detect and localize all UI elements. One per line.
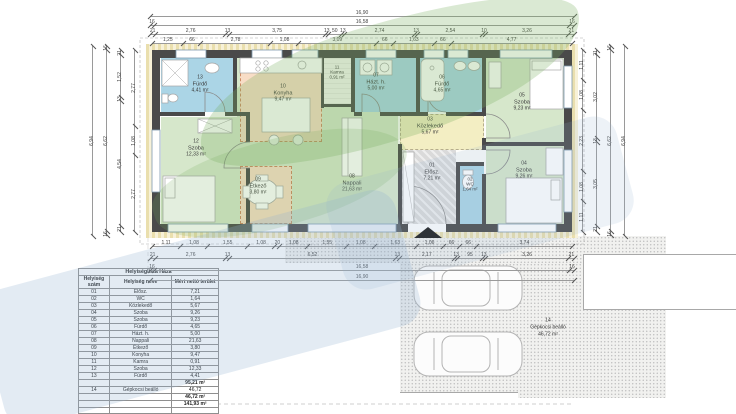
dim-value: 3,02: [593, 92, 599, 102]
dim-chain-right: 1,111,082,231,081,11: [582, 50, 590, 232]
room-label-09: 09Étkező3,80 m²: [249, 176, 266, 196]
cell-name: Gépkocsi beálló: [109, 387, 171, 394]
table-row: 141,93 m²: [79, 401, 219, 408]
table-row: 02WC1,64: [79, 296, 219, 303]
room-11-ar: 0,91 m²: [330, 75, 345, 80]
dim-value: 21: [117, 226, 123, 232]
dim-value: 6,62: [607, 136, 613, 146]
dim-segment: 2,76: [155, 252, 226, 259]
dim-segment: 3,26: [485, 252, 568, 259]
dim-segment: 6,94: [624, 46, 632, 236]
room-06-ar: 4,65 m²: [434, 87, 451, 94]
dim-segment: 16,58: [154, 19, 570, 26]
dim-value: 1,08: [579, 182, 585, 192]
dim-value: 16: [569, 264, 575, 270]
room-06: [420, 58, 482, 112]
cell-name: WC: [109, 296, 171, 303]
dim-segment: 6,62: [610, 50, 618, 231]
cell-num: 12: [79, 366, 110, 373]
dim-value: 2,17: [422, 252, 432, 258]
cell-num: 04: [79, 310, 110, 317]
dim-value: 21: [593, 226, 599, 232]
dim-value: 6,94: [621, 136, 627, 146]
dim-value: 66: [189, 37, 195, 43]
dim-value: 16: [607, 231, 613, 237]
cell-num: [79, 394, 110, 401]
dim-chain-right: 6,94: [624, 46, 632, 236]
cell-num: 08: [79, 338, 110, 345]
dim-segment: 2,23: [582, 110, 590, 171]
dim-segment: 16: [570, 264, 574, 271]
dim-segment: 1,55: [307, 240, 347, 247]
room-02-ar: 1,64 m²: [463, 187, 478, 192]
dim-segment: 21: [120, 226, 128, 232]
cell-num: [79, 380, 110, 387]
room-12: [161, 117, 246, 224]
cell-name: Szoba: [109, 310, 171, 317]
dim-segment: 3,74: [477, 240, 572, 247]
dim-segment: 16: [610, 232, 618, 236]
dim-chain-bottom: 212,76136,52132,171395133,2621: [150, 252, 574, 259]
cell-name: Szoba: [109, 317, 171, 324]
dim-value: 21: [569, 252, 575, 258]
room-05-ar: 9,23 m²: [514, 105, 531, 112]
room-04-ar: 9,26 m²: [516, 173, 533, 180]
cell-area: 21,63: [172, 338, 219, 345]
dim-chain-left: 6,94: [92, 46, 100, 236]
cell-name: Elősz.: [109, 289, 171, 296]
table-row: 08Nappali21,63: [79, 338, 219, 345]
room-label-13: 13Fürdő4,41 m²: [192, 74, 209, 94]
dim-value: 66: [466, 240, 472, 246]
table-row: 03Közlekedő5,67: [79, 303, 219, 310]
dim-segment: 1,08: [347, 240, 375, 247]
cell-area: 3,80: [172, 345, 219, 352]
table-row: 12Szoba12,33: [79, 366, 219, 373]
dim-value: 16: [103, 231, 109, 237]
dim-value: 3,09: [332, 37, 342, 43]
dim-value: 3,75: [272, 28, 282, 34]
dim-segment: 16,90: [150, 274, 574, 281]
dim-value: 2,23: [579, 136, 585, 146]
dim-segment: 1,11: [152, 240, 180, 247]
dim-segment: 66: [434, 37, 451, 44]
dim-value: 2,54: [445, 28, 455, 34]
room-label-05: 05Szoba9,23 m²: [514, 92, 531, 112]
dim-value: 16,58: [356, 264, 369, 270]
dim-value: 1,06: [425, 240, 435, 246]
cell-area: 4,65: [172, 324, 219, 331]
table-row: 14Gépkocsi beálló46,72: [79, 387, 219, 394]
cell-num: 13: [79, 373, 110, 380]
room-list-table: Helyiséglista HázaHelyiség számHelyiség …: [78, 268, 219, 414]
cell-area: 4,41: [172, 373, 219, 380]
dim-value: 21: [569, 28, 575, 34]
table-row: 09Étkező3,80: [79, 345, 219, 352]
dim-value: 2,76: [186, 252, 196, 258]
dim-segment: 66: [460, 240, 477, 247]
cell-num: 09: [79, 345, 110, 352]
room-12-ar: 12,33 m²: [186, 151, 206, 158]
side-walkway: [583, 254, 736, 310]
col-header-num: Helyiség szám: [79, 276, 110, 289]
dim-segment: 66: [184, 37, 201, 44]
dim-segment: 1,08: [582, 81, 590, 111]
cell-name: Fürdő: [109, 373, 171, 380]
dim-segment: 16: [570, 19, 574, 26]
dim-segment: 16,58: [154, 264, 570, 271]
room-list: Helyiséglista HázaHelyiség számHelyiség …: [78, 268, 219, 414]
dim-segment: 1,08: [134, 126, 142, 156]
table-row: 11Kamra0,91: [79, 359, 219, 366]
dim-value: 50: [332, 28, 338, 34]
dim-segment: 6,62: [106, 50, 114, 231]
cell-name: Házt. h.: [109, 331, 171, 338]
dim-segment: 4,54: [120, 101, 128, 226]
dim-segment: 2,17: [399, 252, 454, 259]
cell-area: 0,91: [172, 359, 219, 366]
dim-value: 3,05: [593, 179, 599, 189]
dim-chain-bottom: 1616,5816: [150, 264, 574, 271]
dim-segment: 1,63: [393, 37, 434, 44]
dim-value: 4,77: [507, 37, 517, 43]
dim-segment: 4,77: [451, 37, 572, 44]
dim-value: 2,77: [131, 189, 137, 199]
dim-chain-top: 1,25662,781,083,09661,63664,77: [152, 37, 572, 44]
dim-segment: 1,55: [208, 240, 248, 247]
cell-num: 10: [79, 352, 110, 359]
room-09-ar: 3,80 m²: [249, 189, 266, 196]
dim-segment: 1,52: [120, 56, 128, 98]
dim-segment: 66: [376, 37, 393, 44]
room-label-06: 06Fürdő4,65 m²: [434, 74, 451, 94]
dim-chain-left: 2,771,082,77: [134, 50, 142, 232]
dim-value: 4,54: [117, 159, 123, 169]
cell-num: 01: [79, 289, 110, 296]
dim-value: 66: [440, 37, 446, 43]
table-row: 07Házt. h.5,00: [79, 331, 219, 338]
paving-notch: [400, 392, 518, 414]
cell-area: 46,72: [172, 387, 219, 394]
dim-segment: 21: [569, 28, 574, 35]
room-label-07: 07Házt. h.5,00 m²: [366, 72, 385, 92]
dim-segment: 1,63: [375, 240, 417, 247]
dim-segment: 6,52: [229, 252, 396, 259]
dim-segment: 21: [596, 226, 604, 232]
dim-value: 6,62: [103, 136, 109, 146]
dim-segment: 3,09: [298, 37, 376, 44]
cell-area: 95,21 m²: [172, 380, 219, 387]
dim-segment: 1,11: [582, 201, 590, 232]
dim-segment: 6,94: [92, 46, 100, 236]
room-label-11: 11Kamra0,91 m²: [330, 65, 345, 80]
cell-num: [79, 401, 110, 408]
cell-name: [109, 394, 171, 401]
cell-name: Étkező: [109, 345, 171, 352]
dim-value: 1,08: [579, 91, 585, 101]
dim-value: 1,52: [117, 72, 123, 82]
dim-value: 6,94: [89, 136, 95, 146]
dim-value: 66: [382, 37, 388, 43]
dim-value: 16,90: [356, 10, 369, 16]
dim-value: 2,77: [131, 83, 137, 93]
dim-segment: 3,26: [485, 28, 568, 35]
dim-value: 6,52: [308, 252, 318, 258]
floor-plan-canvas: 08Nappali21,63 m²12Szoba12,33 m²13Fürdő4…: [0, 0, 736, 414]
cell-num: 02: [79, 296, 110, 303]
room-label-01: 01Elősz.7,21 m²: [424, 162, 441, 182]
dim-value: 16: [569, 19, 575, 25]
cell-area: 141,93 m²: [172, 401, 219, 408]
parking-label: 14 Gépkocsi beálló 46,72 m²: [530, 318, 566, 339]
dim-value: 3,26: [522, 28, 532, 34]
room-label-03: 03Közlekedő5,67 m²: [417, 116, 443, 136]
parking-area: 46,72 m²: [530, 332, 566, 339]
dim-segment: 2,54: [418, 28, 483, 35]
dim-chain-bottom: 1,111,081,551,08201,081,551,081,631,0666…: [152, 240, 572, 247]
dim-value: 1,63: [390, 240, 400, 246]
room-02: [458, 166, 484, 224]
cell-area: 46,72 m²: [172, 394, 219, 401]
cell-num: 05: [79, 317, 110, 324]
room-07-ar: 5,00 m²: [366, 85, 385, 92]
cell-name: Fürdő: [109, 324, 171, 331]
table-row: 05Szoba9,23: [79, 317, 219, 324]
dim-chain-left: 211,52134,5421: [120, 50, 128, 232]
cell-area: 1,64: [172, 296, 219, 303]
room-08-ar: 21,63 m²: [342, 186, 362, 193]
room-04: [486, 146, 564, 224]
dim-value: 1,11: [579, 61, 585, 70]
dim-value: 2,76: [186, 28, 196, 34]
dim-chain-right: 166,6216: [610, 46, 618, 236]
dim-value: 2,78: [231, 37, 241, 43]
cell-num: 07: [79, 331, 110, 338]
parking-name: Gépkocsi beálló: [530, 325, 566, 332]
table-row: 95,21 m²: [79, 380, 219, 387]
cell-area: 7,21: [172, 289, 219, 296]
dim-segment: 3,02: [596, 56, 604, 139]
cell-num: 14: [79, 387, 110, 394]
table-row: 01Elősz.7,21: [79, 289, 219, 296]
dim-segment: 2,78: [200, 37, 270, 44]
dim-value: 16,90: [356, 274, 369, 280]
cell-area: 9,26: [172, 310, 219, 317]
dim-value: 16,58: [356, 19, 369, 25]
dim-segment: 1,08: [247, 240, 275, 247]
cell-name: [109, 401, 171, 408]
dim-value: 1,08: [356, 240, 366, 246]
room-10-ar: 9,47 m²: [274, 96, 293, 103]
dim-value: 1,11: [579, 212, 585, 221]
dim-value: 3,74: [520, 240, 530, 246]
dim-segment: 2,76: [155, 28, 226, 35]
dim-chain-bottom: 16,90: [150, 274, 574, 281]
cell-area: 9,47: [172, 352, 219, 359]
table-row: 04Szoba9,26: [79, 310, 219, 317]
dim-chain-left: 166,6216: [106, 46, 114, 236]
dim-segment: 1,11: [582, 50, 590, 81]
dim-segment: 16,90: [150, 10, 574, 17]
room-01: [402, 150, 456, 224]
room-03-ar: 5,67 m²: [417, 129, 443, 136]
dim-segment: 16: [106, 232, 114, 236]
room-label-10: 10Konyha9,47 m²: [274, 83, 293, 103]
room-label-02: 02WC1,64 m²: [463, 177, 478, 192]
dim-chain-top: 212,76133,751350132,74132,54103,2621: [150, 28, 574, 35]
cell-area: 5,67: [172, 303, 219, 310]
dim-value: 66: [449, 240, 455, 246]
dim-value: 95: [467, 252, 473, 258]
cell-num: 03: [79, 303, 110, 310]
room-label-04: 04Szoba9,26 m²: [516, 160, 533, 180]
dim-value: 1,11: [161, 240, 170, 246]
dim-value: 1,08: [289, 240, 299, 246]
dim-value: 1,08: [256, 240, 266, 246]
cell-area: 12,33: [172, 366, 219, 373]
dim-value: 1,08: [131, 136, 137, 146]
cell-name: Közlekedő: [109, 303, 171, 310]
dim-value: 1,63: [409, 37, 419, 43]
dim-value: 2,74: [375, 28, 385, 34]
room-13-ar: 4,41 m²: [192, 87, 209, 94]
room-01-ar: 7,21 m²: [424, 175, 441, 182]
dim-segment: 2,74: [345, 28, 415, 35]
cell-num: 06: [79, 324, 110, 331]
room-label-12: 12Szoba12,33 m²: [186, 138, 206, 158]
dim-segment: 1,08: [582, 172, 590, 202]
table-row: 13Fürdő4,41: [79, 373, 219, 380]
cell-area: 5,00: [172, 331, 219, 338]
dim-value: 3,26: [522, 252, 532, 258]
dim-chain-top: 16,90: [150, 10, 574, 17]
room-label-08: 08Nappali21,63 m²: [342, 173, 362, 193]
table-row: 06Fürdő4,65: [79, 324, 219, 331]
dim-segment: 3,05: [596, 142, 604, 226]
dim-segment: 1,08: [280, 240, 308, 247]
dim-segment: 1,06: [416, 240, 443, 247]
table-row: 10Konyha9,47: [79, 352, 219, 359]
dim-chain-top: 1616,5816: [150, 19, 574, 26]
dim-segment: 3,75: [229, 28, 325, 35]
cell-name: Kamra: [109, 359, 171, 366]
dim-segment: 95: [458, 252, 482, 259]
dim-value: 1,08: [280, 37, 290, 43]
dim-segment: 2,77: [134, 50, 142, 126]
dim-segment: 1,08: [271, 37, 298, 44]
dim-value: 1,55: [223, 240, 233, 246]
dim-segment: 21: [569, 252, 574, 259]
dim-segment: 1,08: [180, 240, 208, 247]
table-row: 46,72 m²: [79, 394, 219, 401]
dim-segment: 1,25: [152, 37, 184, 44]
dim-value: 1,25: [163, 37, 173, 43]
dim-segment: 2,77: [134, 156, 142, 232]
parking-number: 14: [530, 318, 566, 325]
cell-name: [109, 380, 171, 387]
cell-name: Szoba: [109, 366, 171, 373]
dim-chain-right: 213,02133,0521: [596, 50, 604, 232]
cell-area: 9,23: [172, 317, 219, 324]
dim-value: 1,08: [189, 240, 199, 246]
cell-name: Nappali: [109, 338, 171, 345]
dim-value: 1,55: [322, 240, 332, 246]
cell-name: Konyha: [109, 352, 171, 359]
cell-num: 11: [79, 359, 110, 366]
